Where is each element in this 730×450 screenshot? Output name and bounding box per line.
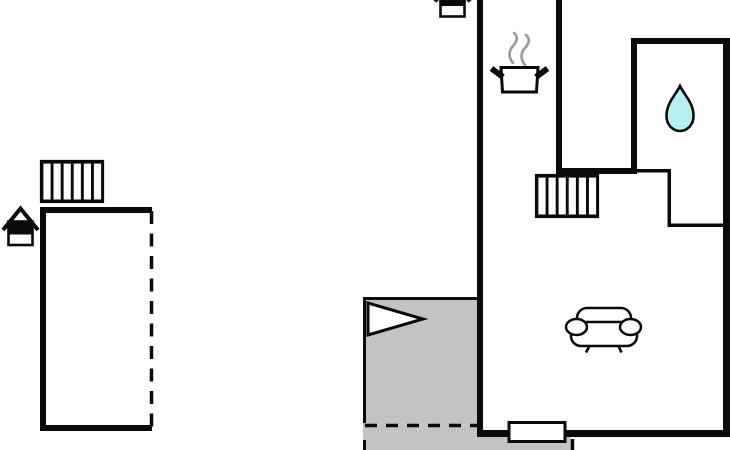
- terrace-left-edge: [363, 297, 366, 423]
- building-walls: [477, 0, 730, 437]
- door-opening: [509, 423, 565, 442]
- bathroom-partition-side: [668, 169, 672, 227]
- radiator-cell: [63, 163, 72, 201]
- radiator-cell: [578, 177, 587, 216]
- floor-plan-page: [0, 0, 730, 450]
- house-band: [9, 222, 33, 235]
- water-drop-icon: [667, 86, 694, 131]
- house-band: [441, 0, 465, 6]
- bathroom-partition-bottom: [668, 224, 727, 228]
- radiator-cell: [588, 177, 597, 216]
- house-entrance-icon: [435, 0, 470, 17]
- sofa-armrest-left: [566, 319, 587, 335]
- radiator-cell: [53, 163, 62, 201]
- radiator-cell: [538, 177, 547, 216]
- sofa-icon: [566, 308, 641, 353]
- radiator-cell: [558, 177, 567, 216]
- radiator-icon: [536, 175, 598, 217]
- radiator-cell: [548, 177, 557, 216]
- bathroom-top-wall: [631, 38, 730, 44]
- radiator-icon: [41, 161, 103, 202]
- steam-icon: [522, 35, 529, 65]
- radiator-cell: [83, 163, 92, 201]
- radiator-cell: [93, 163, 102, 201]
- building-left-wall: [477, 0, 483, 437]
- pot-body: [501, 68, 538, 93]
- cooking-pot-icon: [492, 33, 548, 92]
- left-annex-room: [40, 207, 152, 431]
- terrace-top-edge: [363, 297, 477, 300]
- steam-icon: [510, 33, 517, 63]
- bathroom-partition-top: [637, 169, 670, 173]
- radiator-cell: [568, 177, 577, 216]
- radiator-cell: [43, 163, 52, 201]
- kitchen-right-wall: [556, 0, 562, 174]
- house-entrance-icon: [3, 209, 38, 246]
- annex-bottom-wall: [40, 425, 152, 431]
- building-right-wall: [723, 38, 730, 437]
- floor-plan: [0, 0, 730, 450]
- bathroom-left-wall: [631, 38, 637, 174]
- sofa-armrest-right: [620, 319, 641, 335]
- annex-top-wall: [40, 207, 152, 213]
- annex-left-wall: [40, 207, 46, 431]
- radiator-cell: [73, 163, 82, 201]
- living-top-wall: [556, 168, 637, 174]
